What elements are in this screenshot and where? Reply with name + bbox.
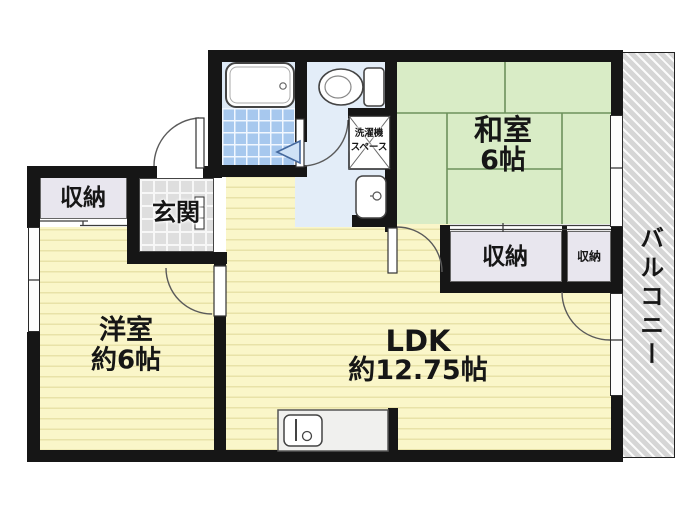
storage-small-label: 収納 bbox=[577, 251, 601, 264]
wall-bedroom-ldk-upper bbox=[214, 252, 226, 268]
wall-closet-divider bbox=[562, 225, 567, 285]
bathroom-tile-floor bbox=[222, 108, 295, 165]
wall-upper-left bbox=[208, 50, 222, 178]
floor-plan-canvas: 収納 玄関 和室 6帖 収納 収納 洋室 約6帖 LDK 約12.75帖 洗濯機… bbox=[0, 0, 700, 525]
entrance-door-arc bbox=[154, 118, 199, 166]
wall-bottom bbox=[27, 450, 623, 462]
washitsu-sliding-door-band bbox=[450, 224, 611, 231]
wall-bedroom-ldk-lower bbox=[214, 314, 226, 452]
wall-closet-bottom bbox=[440, 282, 613, 293]
wall-kitchen-stub bbox=[388, 408, 398, 452]
wall-right-bottom bbox=[611, 395, 623, 462]
window-washitsu-balcony bbox=[610, 115, 623, 227]
youshitsu-label: 洋室 bbox=[99, 317, 153, 345]
bedroom-door-leaf bbox=[214, 266, 226, 316]
storage-entry-sliding-band bbox=[40, 219, 127, 227]
laundry-label-line1: 洗濯機 bbox=[355, 129, 384, 139]
window-ldk-balcony bbox=[610, 293, 623, 396]
genkan-label: 玄関 bbox=[152, 200, 200, 225]
entrance-door-leaf bbox=[196, 118, 204, 168]
wall-top bbox=[208, 50, 623, 62]
wall-toilet-stub bbox=[348, 108, 390, 118]
storage-center-label: 収納 bbox=[482, 245, 528, 269]
wall-right-top bbox=[611, 50, 623, 115]
wall-left-upper bbox=[27, 166, 40, 228]
washitsu-label: 和室 bbox=[474, 115, 532, 145]
wall-genkan-bottom bbox=[127, 252, 227, 264]
wall-left-lower bbox=[27, 332, 40, 462]
youshitsu-size-label: 約6帖 bbox=[91, 347, 161, 374]
washitsu-size-label: 6帖 bbox=[480, 147, 526, 175]
ldk-label: LDK bbox=[385, 326, 450, 356]
balcony-label: バルコニー bbox=[636, 226, 661, 371]
wall-washbasin-bottom bbox=[352, 215, 397, 227]
wall-washroom-washitsu bbox=[385, 50, 397, 232]
storage-entry-label: 収納 bbox=[60, 186, 106, 210]
ldk-size-label: 約12.75帖 bbox=[348, 357, 487, 385]
wall-bath-bottom bbox=[208, 165, 307, 177]
laundry-label-line2: スペース bbox=[351, 143, 388, 153]
window-bedroom-west bbox=[28, 227, 40, 332]
wall-genkan-left bbox=[127, 166, 139, 264]
wall-bath-washroom bbox=[295, 50, 307, 142]
